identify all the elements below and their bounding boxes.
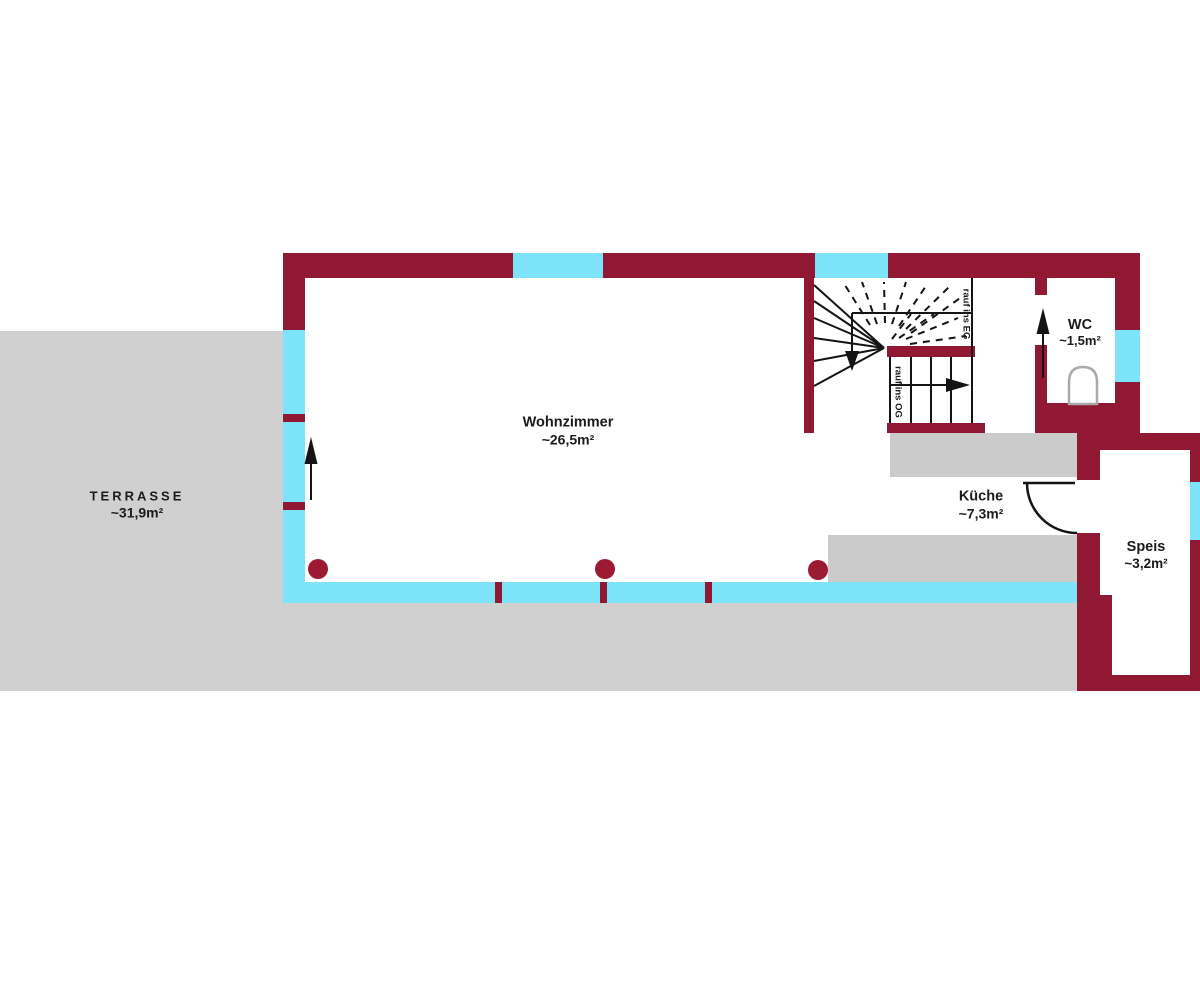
- room-area: ~26,5m²: [523, 431, 614, 447]
- window-bottom-glass-front: [283, 582, 1077, 603]
- room-name: WC: [1059, 317, 1101, 334]
- room-name: Speis: [1124, 539, 1167, 556]
- mullion-bottom-1: [495, 582, 502, 603]
- window-speis: [1190, 482, 1200, 540]
- room-name: TERRASSE: [90, 489, 185, 504]
- room-area: ~31,9m²: [90, 504, 185, 520]
- window-left-glass-front: [283, 330, 305, 603]
- wall-speis-left-thick: [1077, 595, 1112, 675]
- wall-wc-left-lower: [1035, 345, 1047, 403]
- mullion-bottom-2: [600, 582, 607, 603]
- room-area: ~1,5m²: [1059, 334, 1101, 349]
- window-top-left: [513, 253, 603, 278]
- room-label-terrasse: TERRASSE ~31,9m²: [90, 489, 185, 520]
- wall-speis-top: [1100, 433, 1200, 450]
- room-label-speis: Speis ~3,2m²: [1124, 539, 1167, 571]
- window-top-right: [815, 253, 888, 278]
- mullion-bottom-3: [705, 582, 712, 603]
- room-name: Wohnzimmer: [523, 415, 614, 432]
- wall-top: [283, 253, 1140, 278]
- wall-wc-bottom-block: [1035, 403, 1140, 433]
- stair-label-og: rauf ins OG: [892, 366, 903, 418]
- window-wc: [1115, 330, 1140, 382]
- room-label-kueche: Küche ~7,3m²: [959, 489, 1004, 522]
- wall-right-upper: [1115, 278, 1140, 330]
- room-label-wohnzimmer: Wohnzimmer ~26,5m²: [523, 415, 614, 448]
- terrace-entrance-arrow-icon: [305, 437, 318, 500]
- stairs-down-arrow-icon: [845, 315, 859, 371]
- door-swing-icon: [1023, 483, 1077, 533]
- toilet-icon: [1069, 367, 1097, 404]
- wall-speis-right-lower: [1190, 540, 1200, 675]
- wall-livingroom-stair-stub: [804, 278, 814, 433]
- column-dot: [595, 559, 615, 579]
- room-name: Küche: [959, 489, 1004, 506]
- wall-stairs-mid-bar: [887, 346, 975, 357]
- column-dot: [308, 559, 328, 579]
- wall-stairs-bottom-bar: [887, 423, 985, 433]
- wall-kitchen-right-lower: [1077, 533, 1100, 595]
- mullion-left-2: [283, 502, 305, 510]
- mullion-left-1: [283, 414, 305, 422]
- room-area: ~7,3m²: [959, 505, 1004, 521]
- wall-speis-right-upper: [1190, 450, 1200, 482]
- wall-left-upper: [283, 253, 305, 330]
- stair-label-eg: rauf ins EG: [960, 289, 971, 340]
- terrace-lower-strip: [283, 603, 1077, 691]
- kitchen-counter-bottom: [828, 535, 1077, 582]
- room-label-wc: WC ~1,5m²: [1059, 317, 1101, 349]
- wall-speis-bottom: [1077, 675, 1200, 691]
- wall-wc-left-stub: [1035, 278, 1047, 295]
- wall-right-below-wc-window: [1115, 382, 1140, 403]
- kitchen-counter-top: [890, 433, 1077, 477]
- room-area: ~3,2m²: [1124, 556, 1167, 572]
- column-dot: [808, 560, 828, 580]
- wall-kitchen-right-upper: [1077, 433, 1100, 480]
- floor-plan: TERRASSE ~31,9m² Wohnzimmer ~26,5m² Küch…: [0, 0, 1200, 1000]
